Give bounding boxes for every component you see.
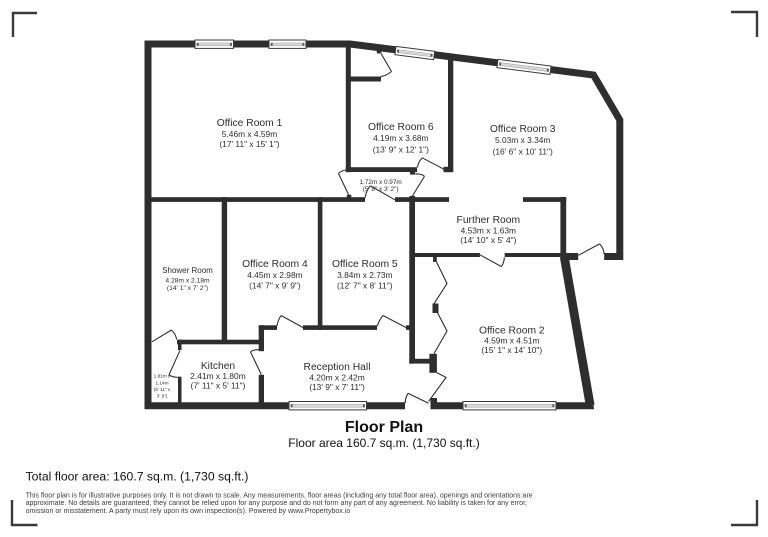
svg-text:Further Room: Further Room (457, 215, 521, 226)
svg-text:(5' 8" x 3' 2"): (5' 8" x 3' 2") (363, 186, 399, 193)
svg-text:Office Room 4: Office Room 4 (242, 259, 308, 270)
svg-text:(17' 11" x 15' 1"): (17' 11" x 15' 1") (219, 139, 279, 149)
svg-text:This floor plan is for illustr: This floor plan is for illustrative purp… (26, 493, 533, 500)
svg-text:5.03m x 3.34m: 5.03m x 3.34m (495, 135, 550, 145)
svg-text:(14' 7" x 9' 9"): (14' 7" x 9' 9") (249, 281, 301, 291)
svg-text:(5' 11" x: (5' 11" x (154, 387, 171, 392)
svg-text:omission or misstatement. A pa: omission or misstatement. A party must r… (26, 508, 351, 515)
svg-text:5.46m x 4.59m: 5.46m x 4.59m (222, 129, 277, 139)
svg-text:4.53m x 1.63m: 4.53m x 1.63m (461, 226, 516, 236)
svg-text:4.28m x 2.18m: 4.28m x 2.18m (165, 277, 210, 284)
svg-text:Office Room 3: Office Room 3 (490, 124, 556, 135)
svg-text:3' 9"): 3' 9") (157, 394, 168, 399)
svg-text:(12' 7" x 8' 11"): (12' 7" x 8' 11") (337, 281, 393, 291)
svg-text:4.20m x 2.42m: 4.20m x 2.42m (309, 373, 364, 383)
svg-text:approximate. No details are gu: approximate. No details are guaranteed, … (26, 500, 527, 507)
svg-text:Shower Room: Shower Room (162, 266, 213, 275)
svg-text:Office Room 5: Office Room 5 (332, 259, 398, 270)
svg-text:(14' 1" x 7' 2"): (14' 1" x 7' 2") (167, 285, 208, 292)
svg-text:4.59m x 4.51m: 4.59m x 4.51m (484, 336, 539, 346)
svg-text:Reception Hall: Reception Hall (304, 362, 371, 373)
svg-text:(13' 9" x 7' 11"): (13' 9" x 7' 11") (309, 382, 365, 392)
svg-text:Floor area 160.7 sq.m. (1,730: Floor area 160.7 sq.m. (1,730 sq.ft.) (288, 436, 479, 450)
svg-text:Office Room 1: Office Room 1 (217, 118, 283, 129)
svg-text:(14' 10" x 5' 4"): (14' 10" x 5' 4") (460, 235, 516, 245)
svg-text:4.45m x 2.98m: 4.45m x 2.98m (247, 270, 302, 280)
svg-text:4.19m x 3.68m: 4.19m x 3.68m (373, 133, 428, 143)
svg-text:1.14m: 1.14m (155, 381, 168, 386)
svg-text:2.41m x 1.80m: 2.41m x 1.80m (190, 371, 245, 381)
svg-text:(15' 1" x 14' 10"): (15' 1" x 14' 10") (481, 345, 542, 355)
svg-text:Total floor area: 160.7 sq.m.: Total floor area: 160.7 sq.m. (1,730 sq.… (26, 470, 249, 484)
svg-text:Office Room 6: Office Room 6 (368, 122, 434, 133)
svg-text:Floor Plan: Floor Plan (345, 419, 423, 436)
svg-text:(16' 6" x 10' 11"): (16' 6" x 10' 11") (493, 146, 553, 156)
svg-text:(7' 11" x 5' 11"): (7' 11" x 5' 11") (191, 381, 246, 391)
svg-text:3.84m x 2.73m: 3.84m x 2.73m (337, 270, 392, 280)
svg-text:1.81m x: 1.81m x (154, 374, 171, 379)
svg-text:(13' 9" x 12' 1"): (13' 9" x 12' 1") (373, 144, 429, 154)
